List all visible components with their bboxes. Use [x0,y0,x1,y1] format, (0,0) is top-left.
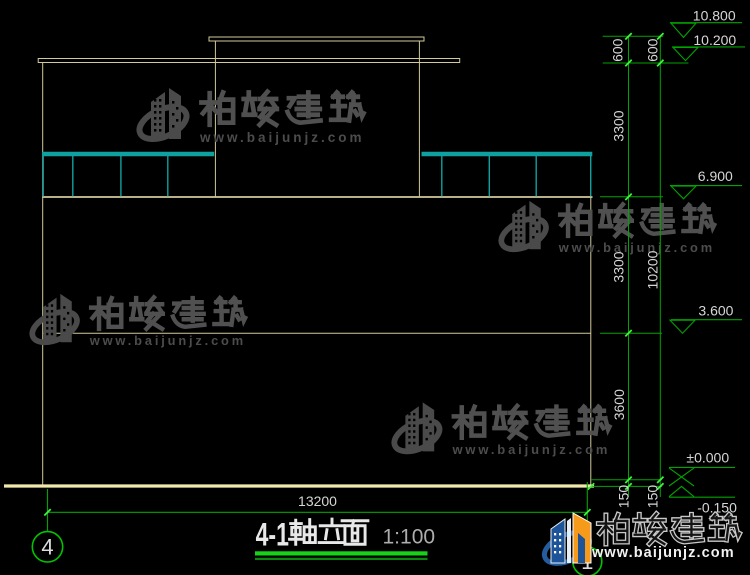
svg-text:13200: 13200 [298,493,337,509]
svg-text:600: 600 [644,38,660,62]
svg-text:10200: 10200 [644,250,660,289]
svg-text:4-1: 4-1 [256,517,289,553]
svg-text:10.200: 10.200 [693,32,736,48]
svg-text:150: 150 [615,485,631,509]
svg-text:3.600: 3.600 [698,303,733,319]
svg-text:4: 4 [41,535,53,560]
svg-text:3300: 3300 [611,110,627,141]
svg-text:150: 150 [645,485,661,509]
svg-text:3600: 3600 [611,389,627,420]
svg-text:www.baijunjz.com: www.baijunjz.com [591,545,735,561]
svg-text:±0.000: ±0.000 [686,449,729,465]
svg-text:6.900: 6.900 [698,168,733,184]
svg-text:1:100: 1:100 [383,526,436,549]
svg-text:600: 600 [610,38,626,62]
svg-text:10.800: 10.800 [693,8,736,24]
svg-text:3300: 3300 [611,251,627,282]
